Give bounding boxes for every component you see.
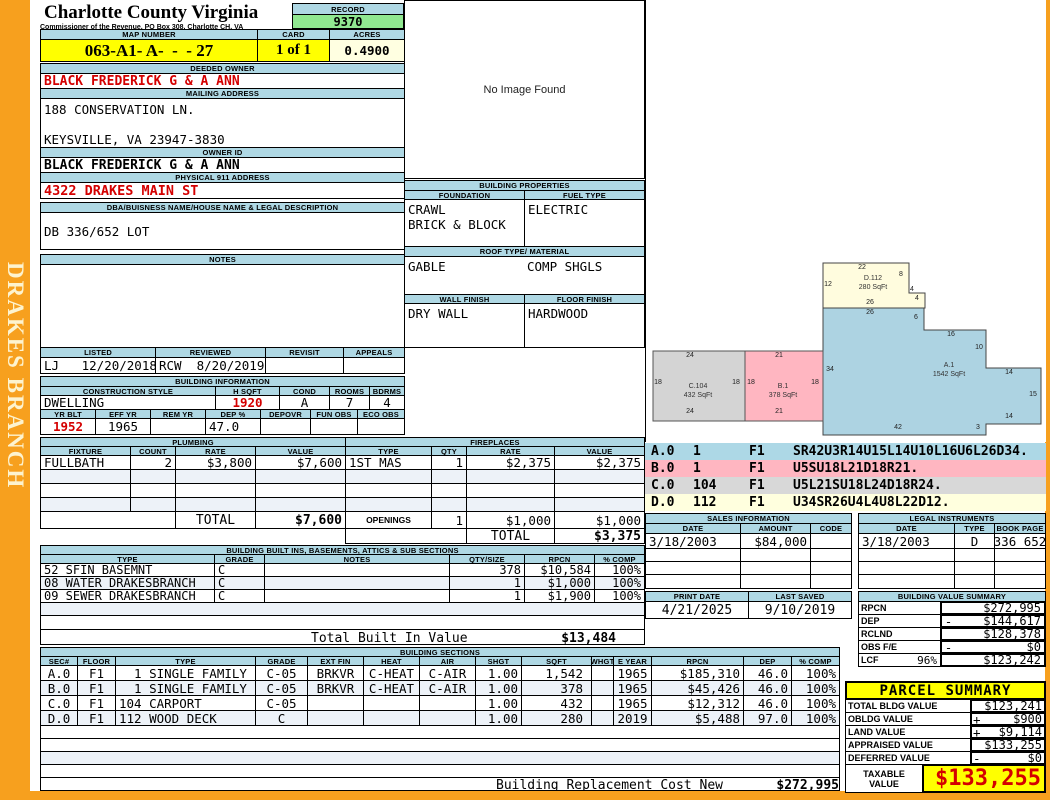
built-ins-total-row: Total Built In Value $13,484 bbox=[40, 629, 645, 645]
table-cell: 100% bbox=[791, 680, 840, 696]
table-cell: 46.0 bbox=[743, 665, 792, 681]
mailing-line-2: KEYSVILLE, VA 23947-3830 bbox=[44, 132, 225, 147]
vector-sec: C.0 bbox=[645, 478, 693, 493]
table-cell bbox=[264, 576, 450, 590]
taxable-label-line2: VALUE bbox=[869, 779, 899, 789]
table-cell bbox=[645, 548, 741, 589]
table-cell: 09 SEWER DRAKESBRANCH bbox=[40, 589, 215, 603]
sketch-dimension-label: 14 bbox=[1005, 413, 1013, 420]
table-cell: 100% bbox=[791, 710, 840, 726]
vector-code: 112 bbox=[693, 495, 749, 510]
sketch-canvas: 2418182421181821342661610141514342221284… bbox=[645, 0, 1046, 442]
hsqft-value: 1920 bbox=[215, 395, 280, 410]
table-cell bbox=[345, 483, 432, 498]
vector-floor: F1 bbox=[749, 478, 793, 493]
table-cell bbox=[466, 497, 555, 512]
table-cell: 46.0 bbox=[743, 695, 792, 711]
table-cell bbox=[431, 483, 467, 498]
ps-row-label: DEFERRED VALUE bbox=[845, 751, 971, 765]
table-cell: 100% bbox=[594, 589, 645, 603]
table-cell bbox=[345, 469, 432, 484]
dep-pct-value: 47.0 bbox=[205, 418, 261, 435]
table-cell bbox=[175, 497, 256, 512]
ps-row-label: LAND VALUE bbox=[845, 725, 971, 739]
table-cell: $12,312 bbox=[651, 695, 744, 711]
mailing-line-1: 188 CONSERVATION LN. bbox=[44, 102, 195, 117]
table-cell bbox=[810, 548, 852, 589]
sketch-a-label: A.1 bbox=[944, 362, 955, 369]
revisit-value bbox=[265, 357, 344, 374]
table-cell: $84,000 bbox=[740, 533, 811, 549]
table-cell: C-HEAT bbox=[363, 680, 420, 696]
taxable-value: $133,255 bbox=[922, 764, 1046, 793]
table-cell bbox=[591, 680, 614, 696]
sketch-vector-row: B.0 1 F1 U5SU18L21D18R21. bbox=[645, 460, 1046, 477]
vector-sec: D.0 bbox=[645, 495, 693, 510]
sketch-dimension-label: 14 bbox=[1005, 369, 1013, 376]
ps-sign: - bbox=[972, 751, 984, 765]
ecoobs-value bbox=[357, 418, 405, 435]
cond-value: A bbox=[279, 395, 330, 410]
sketch-dimension-label: 3 bbox=[976, 424, 980, 431]
taxable-label-line1: TAXABLE bbox=[863, 769, 905, 779]
table-cell bbox=[431, 497, 467, 512]
county-title: Charlotte County Virginia bbox=[44, 2, 294, 24]
notes-box bbox=[40, 264, 405, 348]
table-cell: BRKVR bbox=[307, 665, 364, 681]
table-row bbox=[40, 751, 840, 765]
vs-sign: - bbox=[942, 640, 955, 654]
ps-row-label: OBLDG VALUE bbox=[845, 712, 971, 726]
table-cell: BRKVR bbox=[307, 680, 364, 696]
effyr-value: 1965 bbox=[95, 418, 151, 435]
table-cell: 2019 bbox=[613, 710, 652, 726]
wall-finish-value: DRY WALL bbox=[404, 303, 525, 348]
vector-sec: B.0 bbox=[645, 461, 693, 476]
table-cell: 104 CARPORT bbox=[115, 695, 256, 711]
sketch-dimension-label: 4 bbox=[915, 295, 919, 302]
vs-value: $144,617 bbox=[955, 614, 1044, 628]
legal-description-value: DB 336/652 LOT bbox=[40, 212, 405, 250]
vector-floor: F1 bbox=[749, 461, 793, 476]
table-cell bbox=[307, 695, 364, 711]
table-cell: 2 bbox=[130, 455, 176, 470]
table-cell bbox=[858, 548, 955, 589]
replacement-cost-row: Building Replacement Cost New $272,995 bbox=[40, 777, 840, 791]
table-cell bbox=[345, 497, 432, 512]
table-cell bbox=[554, 497, 645, 512]
sketch-dim-labels: 2418182421181821342661610141514342221284… bbox=[646, 0, 1047, 442]
sketch-dimension-label: 16 bbox=[947, 331, 955, 338]
vs-row-label: RPCN bbox=[858, 601, 941, 615]
table-cell: 100% bbox=[594, 563, 645, 577]
sketch-b-area: 378 SqFt bbox=[769, 392, 797, 399]
sketch-dimension-label: 4 bbox=[910, 286, 914, 293]
table-cell: F1 bbox=[77, 665, 116, 681]
table-cell: F1 bbox=[77, 695, 116, 711]
table-cell bbox=[554, 469, 645, 484]
table-cell: 378 bbox=[449, 563, 525, 577]
replacement-cost-value: $272,995 bbox=[741, 778, 839, 791]
ps-row-label: APPRAISED VALUE bbox=[845, 738, 971, 752]
table-cell: 432 bbox=[521, 695, 592, 711]
deeded-owner-value: BLACK FREDERICK G & A ANN bbox=[40, 73, 405, 89]
table-row bbox=[40, 615, 645, 630]
foundation-line-1: CRAWL bbox=[408, 202, 446, 217]
table-cell: 100% bbox=[791, 695, 840, 711]
funobs-value bbox=[310, 418, 358, 435]
table-cell bbox=[40, 483, 131, 498]
vs-row-label: DEP bbox=[858, 614, 941, 628]
table-cell: 3/18/2003 bbox=[858, 533, 955, 549]
table-cell: 1 bbox=[449, 576, 525, 590]
ps-row-value: + $9,114 bbox=[970, 725, 1046, 739]
table-cell bbox=[591, 695, 614, 711]
sketch-dimension-label: 34 bbox=[826, 366, 834, 373]
sketch-vector-row: D.0 112 F1 U34SR26U4L4U8L22D12. bbox=[645, 494, 1046, 511]
table-row bbox=[40, 602, 645, 616]
table-cell: $3,800 bbox=[175, 455, 256, 470]
table-cell bbox=[363, 710, 420, 726]
sketch-a-area: 1542 SqFt bbox=[933, 371, 965, 378]
vs-label: RPCN bbox=[859, 603, 887, 613]
sketch-dimension-label: 12 bbox=[824, 281, 832, 288]
yrblt-value: 1952 bbox=[40, 418, 96, 435]
no-image-placeholder: No Image Found bbox=[404, 0, 645, 179]
table-cell: $10,584 bbox=[524, 563, 595, 577]
table-cell: C-05 bbox=[255, 695, 308, 711]
table-cell bbox=[431, 469, 467, 484]
table-cell bbox=[363, 695, 420, 711]
vs-row-label: RCLND bbox=[858, 627, 941, 641]
table-cell: C.0 bbox=[40, 695, 78, 711]
plumbing-total-label: TOTAL bbox=[175, 511, 256, 529]
table-cell: $1,000 bbox=[524, 576, 595, 590]
table-cell: 378 bbox=[521, 680, 592, 696]
table-cell: $7,600 bbox=[255, 455, 346, 470]
sketch-vector-row: C.0 104 F1 U5L21SU18L24D18R24. bbox=[645, 477, 1046, 494]
ps-row-label: TOTAL BLDG VALUE bbox=[845, 699, 971, 713]
table-cell: 1965 bbox=[613, 680, 652, 696]
depovr-value bbox=[260, 418, 311, 435]
table-cell bbox=[345, 528, 467, 544]
table-cell: C-AIR bbox=[419, 665, 476, 681]
table-cell: $2,375 bbox=[466, 455, 555, 470]
table-cell: F1 bbox=[77, 680, 116, 696]
table-cell bbox=[175, 483, 256, 498]
table-cell bbox=[40, 511, 176, 529]
table-cell: 97.0 bbox=[743, 710, 792, 726]
table-cell bbox=[255, 497, 346, 512]
table-cell bbox=[419, 710, 476, 726]
openings-label: OPENINGS bbox=[345, 511, 432, 529]
table-cell bbox=[554, 483, 645, 498]
construction-style-value: DWELLING bbox=[40, 395, 216, 410]
vs-row-value: $272,995 bbox=[940, 601, 1046, 615]
vector-floor: F1 bbox=[749, 495, 793, 510]
table-cell: B.0 bbox=[40, 680, 78, 696]
table-cell bbox=[419, 695, 476, 711]
ps-row-value: $133,255 bbox=[970, 738, 1046, 752]
card-value: 1 of 1 bbox=[257, 39, 330, 62]
ps-value: $123,241 bbox=[984, 699, 1044, 713]
table-cell: F1 bbox=[77, 710, 116, 726]
built-ins-total-value: $13,484 bbox=[501, 631, 616, 645]
table-cell: 3/18/2003 bbox=[645, 533, 741, 549]
sketch-dimension-label: 18 bbox=[654, 379, 662, 386]
sketch-dimension-label: 15 bbox=[1029, 391, 1037, 398]
vs-row-value: $123,242 bbox=[940, 653, 1046, 667]
ps-row-value: + $900 bbox=[970, 712, 1046, 726]
table-row bbox=[40, 738, 840, 752]
table-cell: $45,426 bbox=[651, 680, 744, 696]
table-cell: 08 WATER DRAKESBRANCH bbox=[40, 576, 215, 590]
fireplaces-total-value: $3,375 bbox=[554, 528, 645, 544]
foundation-value: CRAWL BRICK & BLOCK bbox=[404, 199, 525, 247]
table-cell: 1 bbox=[431, 455, 467, 470]
table-cell bbox=[994, 548, 1046, 589]
ps-value: $0 bbox=[984, 751, 1044, 765]
vs-row-value: - $144,617 bbox=[940, 614, 1046, 628]
ps-label: DEFERRED VALUE bbox=[846, 753, 930, 763]
table-cell: C-AIR bbox=[419, 680, 476, 696]
table-cell bbox=[130, 483, 176, 498]
vector-path: U5SU18L21D18R21. bbox=[793, 461, 918, 476]
table-cell bbox=[810, 533, 852, 549]
table-cell: 1 bbox=[431, 511, 467, 529]
vs-value: $0 bbox=[955, 640, 1044, 654]
vs-label: LCF bbox=[859, 655, 879, 665]
vs-value: $272,995 bbox=[955, 601, 1044, 615]
ps-row-value: $123,241 bbox=[970, 699, 1046, 713]
ps-label: APPRAISED VALUE bbox=[846, 740, 933, 750]
sketch-dimension-label: 10 bbox=[975, 344, 983, 351]
sketch-dimension-label: 26 bbox=[866, 309, 874, 316]
ps-value: $133,255 bbox=[984, 738, 1044, 752]
vs-label: DEP bbox=[859, 616, 880, 626]
table-cell: 1.00 bbox=[475, 710, 522, 726]
sketch-dimension-label: 42 bbox=[894, 424, 902, 431]
table-cell: C bbox=[214, 576, 265, 590]
table-cell bbox=[954, 548, 995, 589]
table-cell bbox=[591, 665, 614, 681]
sketch-dimension-label: 21 bbox=[775, 352, 783, 359]
table-cell bbox=[255, 483, 346, 498]
table-cell: 1.00 bbox=[475, 695, 522, 711]
mailing-address-box: 188 CONSERVATION LN. KEYSVILLE, VA 23947… bbox=[40, 98, 405, 148]
table-cell bbox=[175, 469, 256, 484]
table-cell: 1 bbox=[449, 589, 525, 603]
table-cell bbox=[307, 710, 364, 726]
vs-sign: - bbox=[942, 614, 955, 628]
ps-row-value: - $0 bbox=[970, 751, 1046, 765]
table-cell bbox=[40, 469, 131, 484]
table-cell: FULLBATH bbox=[40, 455, 131, 470]
sketch-dimension-label: 21 bbox=[775, 408, 783, 415]
sketch-dimension-label: 18 bbox=[747, 379, 755, 386]
sketch-dimension-label: 26 bbox=[866, 299, 874, 306]
table-cell: $5,488 bbox=[651, 710, 744, 726]
owner-id-value: BLACK FREDERICK G & A ANN bbox=[40, 157, 405, 173]
foundation-line-2: BRICK & BLOCK bbox=[408, 217, 506, 232]
table-cell: C bbox=[214, 589, 265, 603]
table-cell: C bbox=[255, 710, 308, 726]
plumbing-total-value: $7,600 bbox=[255, 511, 346, 529]
table-cell: 1 SINGLE FAMILY bbox=[115, 680, 256, 696]
ps-sign: + bbox=[972, 725, 984, 739]
vs-row-label: OBS F/E bbox=[858, 640, 941, 654]
sketch-dimension-label: 6 bbox=[914, 314, 918, 321]
vector-code: 1 bbox=[693, 461, 749, 476]
vector-code: 1 bbox=[693, 444, 749, 459]
vector-path: U5L21SU18L24D18R24. bbox=[793, 478, 942, 493]
sketch-dimension-label: 24 bbox=[686, 408, 694, 415]
bdrms-value: 4 bbox=[369, 395, 405, 410]
vector-path: U34SR26U4L4U8L22D12. bbox=[793, 495, 950, 510]
left-frame-bar: DRAKES BRANCH bbox=[0, 0, 30, 800]
table-cell bbox=[264, 563, 450, 577]
parcel-summary-title: PARCEL SUMMARY bbox=[845, 681, 1046, 700]
vector-code: 104 bbox=[693, 478, 749, 493]
sketch-dimension-label: 24 bbox=[686, 352, 694, 359]
table-cell: 100% bbox=[594, 576, 645, 590]
last-saved-value: 9/10/2019 bbox=[748, 601, 852, 619]
print-date-value: 4/21/2025 bbox=[645, 601, 749, 619]
sketch-c-label: C.104 bbox=[689, 383, 708, 390]
table-cell: 100% bbox=[791, 665, 840, 681]
table-cell: C bbox=[214, 563, 265, 577]
table-cell: $1,000 bbox=[466, 511, 555, 529]
floor-finish-value: HARDWOOD bbox=[524, 303, 645, 348]
sketch-d-label: D.112 bbox=[864, 275, 882, 282]
table-cell bbox=[130, 497, 176, 512]
map-number-value: 063-A1- A- - - 27 bbox=[40, 39, 258, 62]
table-cell bbox=[466, 469, 555, 484]
roof-material-value: COMP SHGLS bbox=[527, 259, 602, 274]
ps-label: LAND VALUE bbox=[846, 727, 905, 737]
table-row bbox=[40, 725, 840, 739]
table-cell: $2,375 bbox=[554, 455, 645, 470]
vector-sec: A.0 bbox=[645, 444, 693, 459]
table-cell: $185,310 bbox=[651, 665, 744, 681]
table-cell: 1 SINGLE FAMILY bbox=[115, 665, 256, 681]
table-cell bbox=[130, 469, 176, 484]
table-cell: C-05 bbox=[255, 680, 308, 696]
table-cell bbox=[40, 497, 131, 512]
vs-value: $128,378 bbox=[955, 627, 1044, 641]
ps-label: TOTAL BLDG VALUE bbox=[846, 701, 937, 711]
vs-label: OBS F/E bbox=[859, 642, 897, 652]
table-cell: 1,542 bbox=[521, 665, 592, 681]
table-cell: 52 SFIN BASEMNT bbox=[40, 563, 215, 577]
appeals-value bbox=[343, 357, 405, 374]
fuel-type-value: ELECTRIC bbox=[524, 199, 645, 247]
rooms-value: 7 bbox=[329, 395, 370, 410]
remyr-value bbox=[150, 418, 206, 435]
ps-label: OBLDG VALUE bbox=[846, 714, 913, 724]
ps-value: $9,114 bbox=[984, 725, 1044, 739]
table-cell: 336 652 bbox=[994, 533, 1046, 549]
vs-row-label: LCF 96% bbox=[858, 653, 941, 667]
table-cell bbox=[255, 469, 346, 484]
sketch-d-area: 280 SqFt bbox=[859, 284, 887, 291]
table-cell bbox=[466, 483, 555, 498]
replacement-cost-label: Building Replacement Cost New bbox=[496, 778, 723, 791]
vs-value: $123,242 bbox=[955, 653, 1044, 667]
roof-type-value: GABLE bbox=[408, 259, 446, 274]
sketch-b-label: B.1 bbox=[778, 383, 789, 390]
vs-row-value: $128,378 bbox=[940, 627, 1046, 641]
table-c bbox=[264, 589, 450, 603]
fireplaces-total-label: TOTAL bbox=[466, 528, 555, 544]
built-ins-total-label: Total Built In Value bbox=[311, 631, 468, 645]
vs-label: RCLND bbox=[859, 629, 893, 639]
sketch-dimension-label: 18 bbox=[811, 379, 819, 386]
sketch-c-area: 432 SqFt bbox=[684, 392, 712, 399]
table-cell: D bbox=[954, 533, 995, 549]
table-cell: 280 bbox=[521, 710, 592, 726]
vector-floor: F1 bbox=[749, 444, 793, 459]
taxable-value-label: TAXABLE VALUE bbox=[845, 764, 923, 793]
sketch-dimension-label: 8 bbox=[899, 271, 903, 278]
record-value: 9370 bbox=[292, 14, 404, 29]
table-cell: 1965 bbox=[613, 695, 652, 711]
table-cell: 112 WOOD DECK bbox=[115, 710, 256, 726]
table-cell: 1965 bbox=[613, 665, 652, 681]
table-cell: 1.00 bbox=[475, 680, 522, 696]
table-cell: C-HEAT bbox=[363, 665, 420, 681]
physical-address-value: 4322 DRAKES MAIN ST bbox=[40, 182, 405, 199]
sketch-dimension-label: 22 bbox=[858, 264, 866, 271]
ps-value: $900 bbox=[984, 712, 1044, 726]
table-cell bbox=[591, 710, 614, 726]
sketch-dimension-label: 18 bbox=[732, 379, 740, 386]
reviewed-value: RCW 8/20/2019 bbox=[155, 357, 266, 374]
table-row bbox=[40, 764, 840, 778]
district-vertical-label: DRAKES BRANCH bbox=[2, 262, 28, 552]
table-cell bbox=[740, 548, 811, 589]
table-cell: D.0 bbox=[40, 710, 78, 726]
table-cell: 1ST MAS bbox=[345, 455, 432, 470]
vector-path: SR42U3R14U15L14U10L16U6L26D34. bbox=[793, 444, 1028, 459]
listed-value: LJ 12/20/2018 bbox=[40, 357, 156, 374]
acres-value: 0.4900 bbox=[329, 39, 405, 62]
table-cell: 1.00 bbox=[475, 665, 522, 681]
table-cell: $1,900 bbox=[524, 589, 595, 603]
roof-value: GABLE COMP SHGLS bbox=[404, 256, 645, 295]
table-cell: A.0 bbox=[40, 665, 78, 681]
table-cell: 46.0 bbox=[743, 680, 792, 696]
vs-row-value: - $0 bbox=[940, 640, 1046, 654]
vs-pct: 96% bbox=[879, 654, 941, 667]
table-cell: $1,000 bbox=[554, 511, 645, 529]
table-cell: C-05 bbox=[255, 665, 308, 681]
ps-sign: + bbox=[972, 712, 984, 726]
sketch-vector-row: A.0 1 F1 SR42U3R14U15L14U10L16U6L26D34. bbox=[645, 443, 1046, 460]
